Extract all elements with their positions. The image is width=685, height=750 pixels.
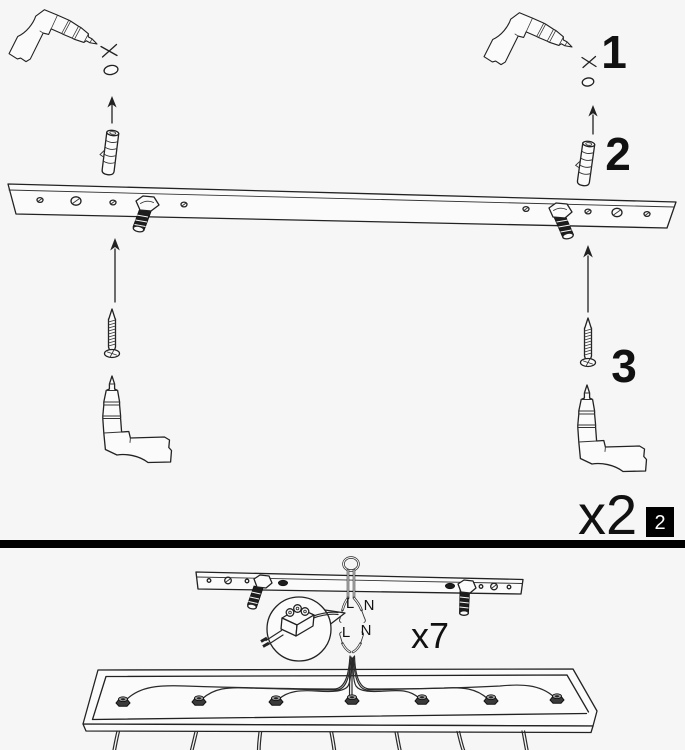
wall-anchor-left: [98, 129, 119, 175]
page-number-text: 2: [654, 512, 665, 534]
wall-anchor-right: [573, 140, 595, 186]
drill-mark-x-left: [101, 45, 117, 58]
quantity-x7-label: x7: [411, 615, 449, 656]
section-divider: [0, 540, 685, 548]
callout-step-3: 3: [611, 340, 637, 392]
drill-mark-x-right: [582, 57, 596, 68]
callout-step-2: 2: [605, 128, 631, 180]
terminal-block-detail: [261, 597, 345, 661]
fixture-wires-fork: L N: [340, 622, 372, 652]
arrow-up-short-left: [107, 96, 116, 123]
arrow-up-long-right: [583, 245, 593, 312]
mounted-bracket-bar: [196, 572, 523, 615]
mounted-bolt-right: [458, 580, 476, 615]
mounting-bracket-bar: [8, 184, 676, 240]
ceiling-wire-live-label: L: [346, 595, 354, 612]
fixture-wire-neutral-label: N: [361, 622, 372, 639]
drilled-hole-left: [103, 64, 118, 75]
assembly-diagram: 1 2 3 x2 2: [0, 0, 685, 750]
arrow-up-short-right: [588, 105, 597, 134]
drilled-hole-right: [582, 77, 595, 87]
step-panel-bracket-mounting: 1 2 3 x2 2: [8, 3, 676, 546]
screwdriver-bottom-left: [103, 376, 172, 463]
callout-step-1: 1: [601, 26, 627, 78]
drill-top-right: [483, 6, 575, 92]
screw-right: [581, 318, 596, 367]
screwdriver-bottom-right: [578, 385, 647, 472]
screw-left: [105, 309, 120, 358]
drill-top-left: [8, 3, 100, 89]
drill-step-left: [8, 3, 171, 463]
arrow-up-long-left: [110, 238, 120, 302]
wiring-panel: L N: [83, 558, 597, 750]
quantity-x2-label: x2: [578, 483, 637, 546]
fixture-canopy: [83, 656, 597, 750]
fixture-wire-live-label: L: [342, 624, 350, 641]
ceiling-wire-neutral-label: N: [364, 597, 375, 614]
hanging-cords: [113, 731, 528, 750]
instruction-page: 1 2 3 x2 2: [0, 0, 685, 750]
